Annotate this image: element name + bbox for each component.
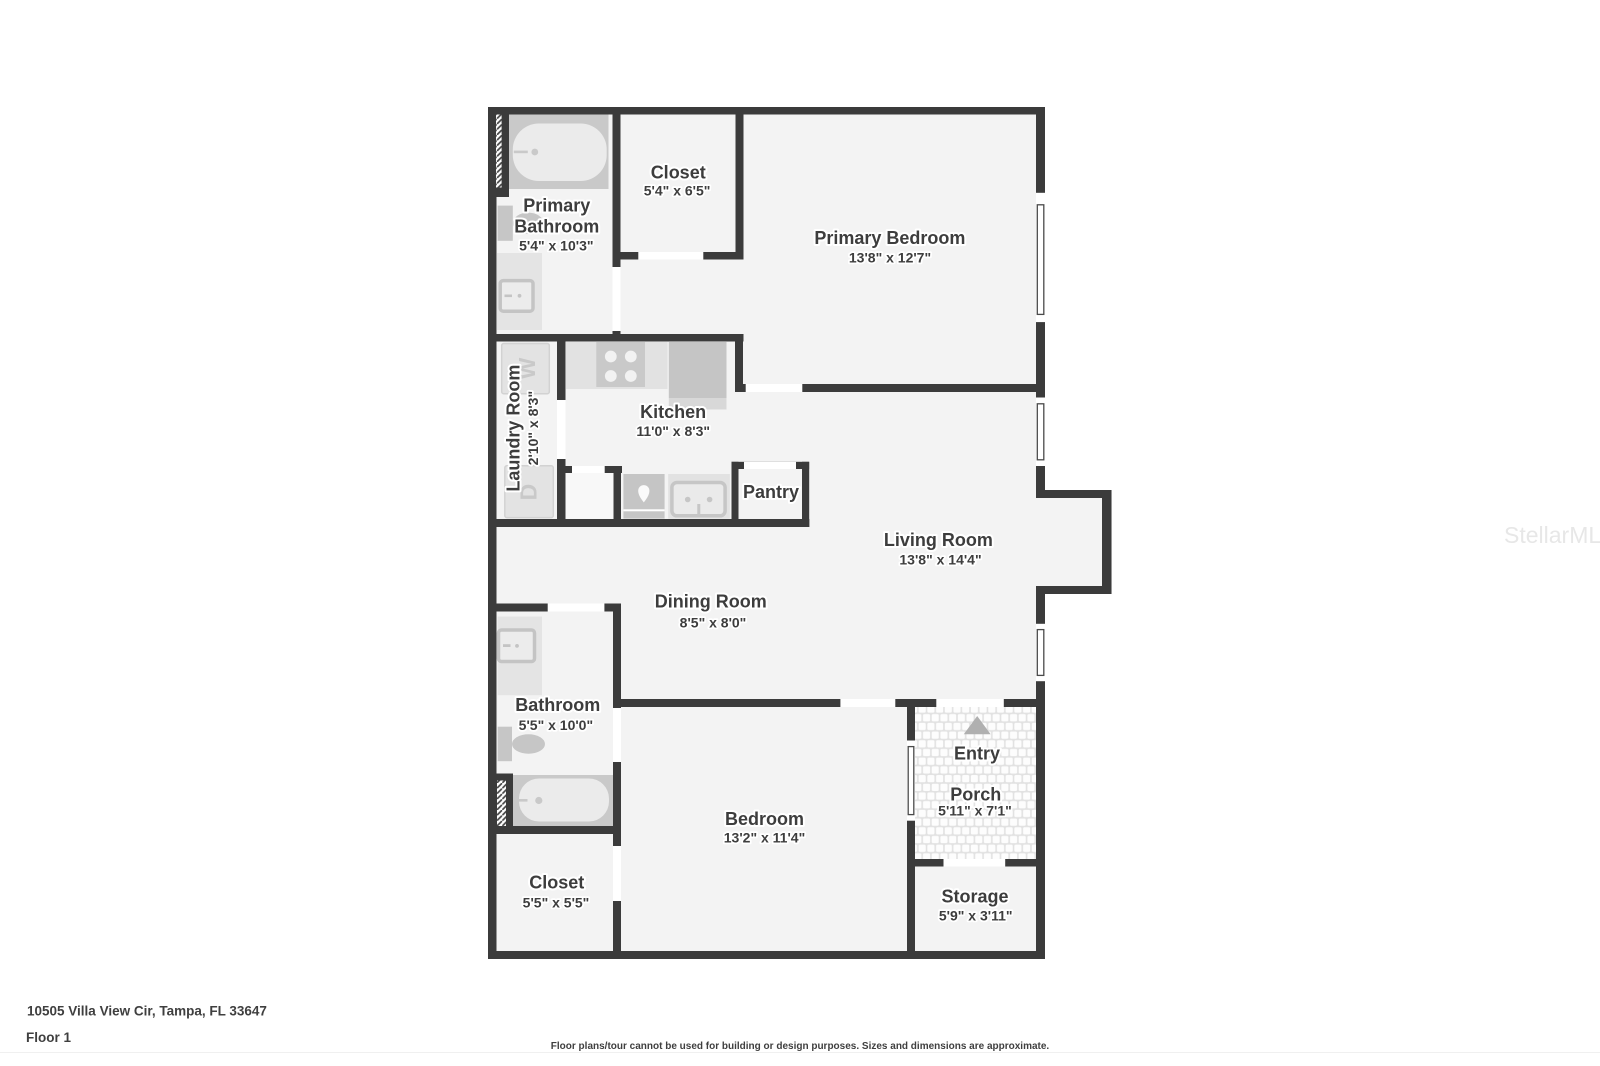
svg-text:13'2" x 11'4": 13'2" x 11'4" [724,830,805,846]
svg-text:Porch: Porch [950,785,1001,805]
svg-text:Laundry Room: Laundry Room [503,365,523,492]
svg-text:Pantry: Pantry [743,482,799,502]
svg-text:5'5" x 10'0": 5'5" x 10'0" [519,717,593,733]
svg-text:Closet: Closet [651,163,706,183]
svg-text:Entry: Entry [954,744,1000,764]
svg-text:Primary: Primary [523,196,590,216]
svg-text:5'4" x 6'5": 5'4" x 6'5" [644,183,711,199]
svg-text:Bathroom: Bathroom [515,695,600,715]
svg-text:Floor 1: Floor 1 [26,1030,71,1045]
svg-text:Living Room: Living Room [884,530,993,550]
svg-text:Kitchen: Kitchen [640,402,706,422]
svg-text:Dining Room: Dining Room [655,591,767,611]
svg-text:5'9" x 3'11": 5'9" x 3'11" [939,908,1013,924]
svg-text:8'5" x 8'0": 8'5" x 8'0" [680,614,747,630]
svg-text:Bathroom: Bathroom [514,217,599,237]
svg-text:Storage: Storage [941,887,1008,907]
svg-text:10505 Villa View Cir, Tampa, F: 10505 Villa View Cir, Tampa, FL 33647 [27,1004,267,1019]
svg-text:13'8" x 14'4": 13'8" x 14'4" [899,552,981,568]
svg-text:Closet: Closet [529,872,584,892]
svg-text:StellarMLS: StellarMLS [1504,522,1600,548]
svg-text:11'0" x 8'3": 11'0" x 8'3" [636,423,710,439]
svg-text:5'5" x 5'5": 5'5" x 5'5" [523,895,590,911]
svg-text:Floor plans/tour cannot be use: Floor plans/tour cannot be used for buil… [551,1041,1050,1052]
svg-text:5'4" x 10'3": 5'4" x 10'3" [519,237,593,253]
svg-text:13'8" x 12'7": 13'8" x 12'7" [849,250,931,266]
svg-text:2'10" x 8'3": 2'10" x 8'3" [525,391,541,465]
svg-text:Primary Bedroom: Primary Bedroom [814,228,965,248]
svg-text:5'11" x 7'1": 5'11" x 7'1" [938,803,1012,819]
svg-text:Bedroom: Bedroom [725,809,804,829]
